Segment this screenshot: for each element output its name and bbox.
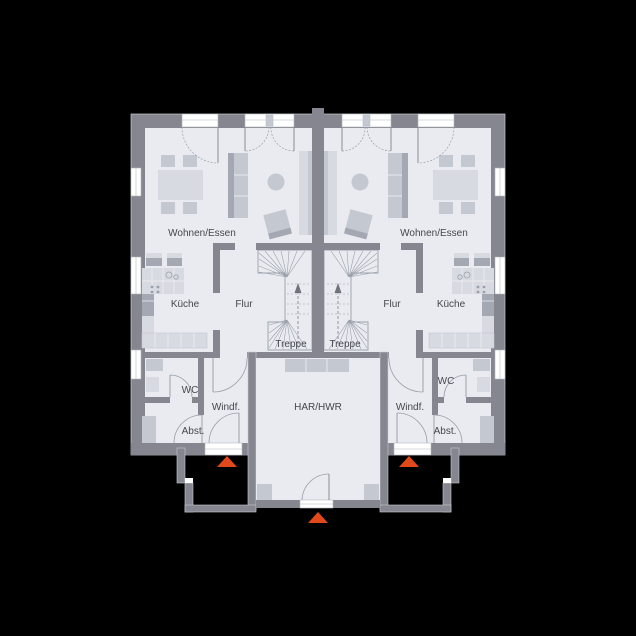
porch-step xyxy=(185,478,193,483)
room-label-wc-left: WC xyxy=(182,385,199,396)
room-label-hall-left: Flur xyxy=(235,299,253,310)
front-door xyxy=(205,443,242,455)
entrance-arrow-icon xyxy=(217,456,237,467)
room-label-utility: HAR/HWR xyxy=(294,402,342,413)
room-label-storage-left: Abst. xyxy=(182,426,205,437)
entrance-porch xyxy=(177,448,256,512)
sofa xyxy=(299,151,312,235)
room-label-living-right: Wohnen/Essen xyxy=(400,228,468,239)
party-wall xyxy=(312,108,324,358)
room-label-vestibule-left: Windf. xyxy=(212,402,240,413)
room-label-kitchen-left: Küche xyxy=(171,299,200,310)
room-label-wc-right: WC xyxy=(438,376,455,387)
room-label-vestibule-right: Windf. xyxy=(396,402,424,413)
room-label-hall-right: Flur xyxy=(383,299,401,310)
room-label-stairs-left: Treppe xyxy=(275,339,307,350)
room-label-stairs-right: Treppe xyxy=(329,339,361,350)
door-post xyxy=(266,115,273,126)
entrance-arrow-icon xyxy=(308,512,328,523)
fridge xyxy=(142,294,154,316)
room-label-living-left: Wohnen/Essen xyxy=(168,228,236,239)
side-table xyxy=(268,174,285,191)
utility-room-floor xyxy=(256,358,380,500)
storage-shelf xyxy=(142,416,156,443)
room-label-storage-right: Abst. xyxy=(434,426,457,437)
room-label-kitchen-right: Küche xyxy=(437,299,466,310)
shelf-cabinet xyxy=(228,153,248,218)
floor-plan-svg: Wohnen/Essen Wohnen/Essen Küche Küche Fl… xyxy=(0,0,636,636)
